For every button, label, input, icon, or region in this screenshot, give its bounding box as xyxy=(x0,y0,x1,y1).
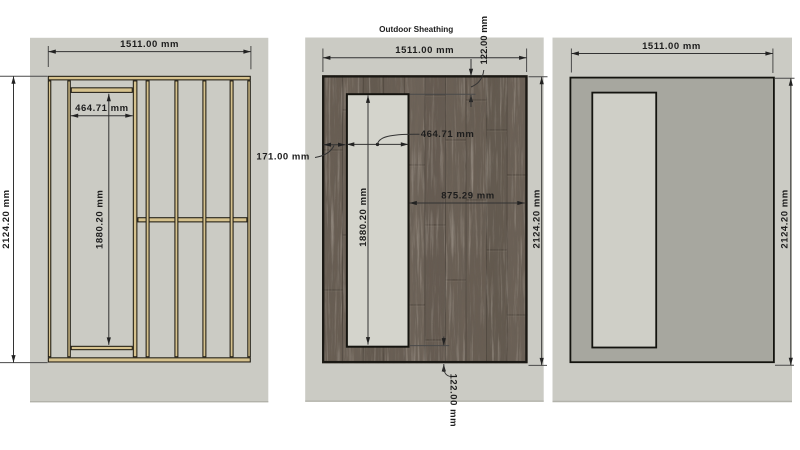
svg-text:1880.20 mm: 1880.20 mm xyxy=(358,187,369,246)
svg-text:464.71 mm: 464.71 mm xyxy=(421,129,475,140)
svg-text:1511.00 mm: 1511.00 mm xyxy=(120,39,179,50)
svg-text:122.00 mm: 122.00 mm xyxy=(447,374,458,428)
svg-text:1511.00 mm: 1511.00 mm xyxy=(395,45,454,56)
svg-text:1511.00 mm: 1511.00 mm xyxy=(642,41,701,52)
svg-text:1880.20 mm: 1880.20 mm xyxy=(95,190,106,249)
svg-text:2124.20 mm: 2124.20 mm xyxy=(1,189,12,248)
svg-text:875.29 mm: 875.29 mm xyxy=(441,190,495,201)
svg-text:464.71 mm: 464.71 mm xyxy=(75,103,129,114)
svg-text:2124.20 mm: 2124.20 mm xyxy=(532,189,543,248)
svg-text:2124.20 mm: 2124.20 mm xyxy=(779,189,790,248)
svg-text:Outdoor Sheathing: Outdoor Sheathing xyxy=(379,25,453,34)
svg-text:122.00 mm: 122.00 mm xyxy=(479,16,490,65)
svg-text:171.00 mm: 171.00 mm xyxy=(256,152,310,163)
